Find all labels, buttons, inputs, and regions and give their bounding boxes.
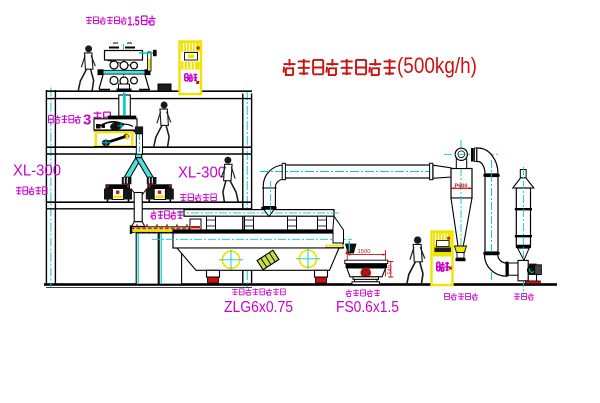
svg-text:FS0.6x1.5: FS0.6x1.5 <box>336 299 399 316</box>
svg-text:540: 540 <box>388 265 394 274</box>
svg-text:ZLG6x0.75: ZLG6x0.75 <box>224 299 293 316</box>
svg-text:XL-300: XL-300 <box>13 163 61 180</box>
svg-text:XL-300: XL-300 <box>178 165 226 182</box>
svg-text:(500kg/h): (500kg/h) <box>397 53 477 78</box>
svg-text:3: 3 <box>83 112 91 129</box>
svg-text:1.5: 1.5 <box>128 15 140 29</box>
